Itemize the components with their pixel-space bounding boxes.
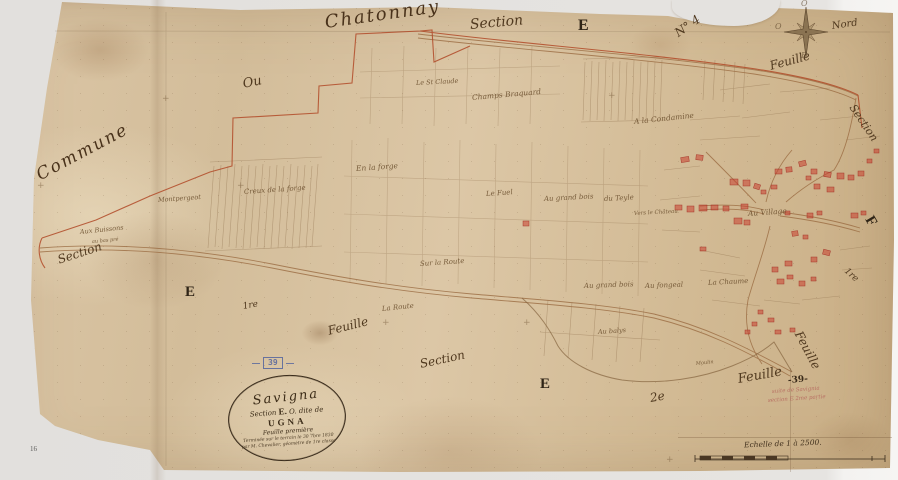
- compass-letter-west: O: [775, 23, 782, 31]
- label-grand-bois-1: Au grand bois: [544, 193, 594, 203]
- label-feuille-39: Feuille: [737, 365, 783, 386]
- label-1re-left: 1re: [242, 300, 259, 312]
- label-feuille-right-diag: Feuille: [793, 329, 823, 371]
- label-au-balys: Au balys: [598, 327, 626, 335]
- label-champs-braquard: Champs Braquard: [472, 88, 542, 102]
- label-moulin: Moulin: [696, 360, 714, 367]
- label-commune: Commune: [34, 121, 132, 184]
- grid-cross: +: [237, 182, 245, 191]
- label-au-bas-pre: au bas pré: [92, 238, 119, 245]
- map-labels-layer: ChatonnaySectionEN° 4NordOOEFeuilleSecti…: [0, 0, 898, 480]
- label-pencil-note-2: section E 2me partie: [768, 395, 826, 405]
- label-la-chaume: La Chaume: [708, 278, 749, 287]
- label-grand-bois-2: Au grand bois: [584, 281, 634, 290]
- grid-cross: +: [666, 456, 674, 465]
- label-e-top: E: [578, 18, 589, 34]
- label-aux-buissons: Aux Buissons: [80, 224, 124, 235]
- label-2e: 2e: [649, 390, 666, 404]
- label-chatonnay: Chatonnay: [324, 0, 442, 32]
- label-no4: N° 4: [673, 13, 703, 39]
- compass-letter-top: O: [801, 0, 808, 8]
- grid-cross: +: [382, 319, 390, 328]
- label-au-fongeal: Au fongeal: [645, 282, 683, 290]
- label-ou: Ou: [242, 74, 263, 91]
- label-en-la-forge: En la forge: [356, 162, 398, 172]
- grid-cross: +: [37, 182, 45, 191]
- compass-north-label: Nord: [831, 18, 858, 32]
- label-feuille-bottom-left: Feuille: [327, 315, 370, 337]
- label-st-claude: Le St Claude: [416, 78, 459, 87]
- cadastral-map-scan: ChatonnaySectionEN° 4NordOOEFeuilleSecti…: [0, 0, 898, 480]
- label-montpergeot: Montpergeot: [158, 194, 201, 203]
- label-page-16: 16: [30, 446, 37, 453]
- stamp-number: 39: [263, 357, 283, 369]
- label-le-fuel: Le Fuel: [486, 189, 513, 198]
- label-condamine: A la Condamine: [634, 112, 695, 126]
- label-du-teyle: du Teyle: [604, 194, 634, 203]
- label-f-right: F: [862, 214, 880, 229]
- label-au-village: Au Village: [748, 207, 787, 217]
- grid-cross: +: [162, 95, 170, 104]
- label-section-top: Section: [469, 13, 523, 32]
- stamp-dash-right: [286, 363, 294, 364]
- label-section-right: Section: [847, 102, 880, 143]
- label-feuille-compass: Feuille: [768, 50, 811, 72]
- grid-cross: +: [608, 92, 616, 101]
- label-e-bottom: E: [540, 377, 550, 392]
- grid-cross: +: [523, 319, 531, 328]
- stamp-dash-left: [252, 363, 260, 364]
- cartouche-section-letter: E.: [278, 406, 287, 417]
- label-creux-de-la-forge: Creux de la forge: [244, 185, 306, 196]
- label-vers-chateau: Vers le Château: [634, 210, 678, 218]
- label-1re-right: 1re: [842, 267, 859, 284]
- label-section-bottom: Section: [419, 349, 466, 370]
- label-la-route: La Route: [382, 303, 415, 313]
- label-39-ink: -39-: [788, 375, 809, 386]
- label-sur-la-route: Sur la Route: [420, 258, 465, 268]
- label-e-left: E: [185, 285, 195, 300]
- archive-number-stamp: 39: [252, 357, 294, 369]
